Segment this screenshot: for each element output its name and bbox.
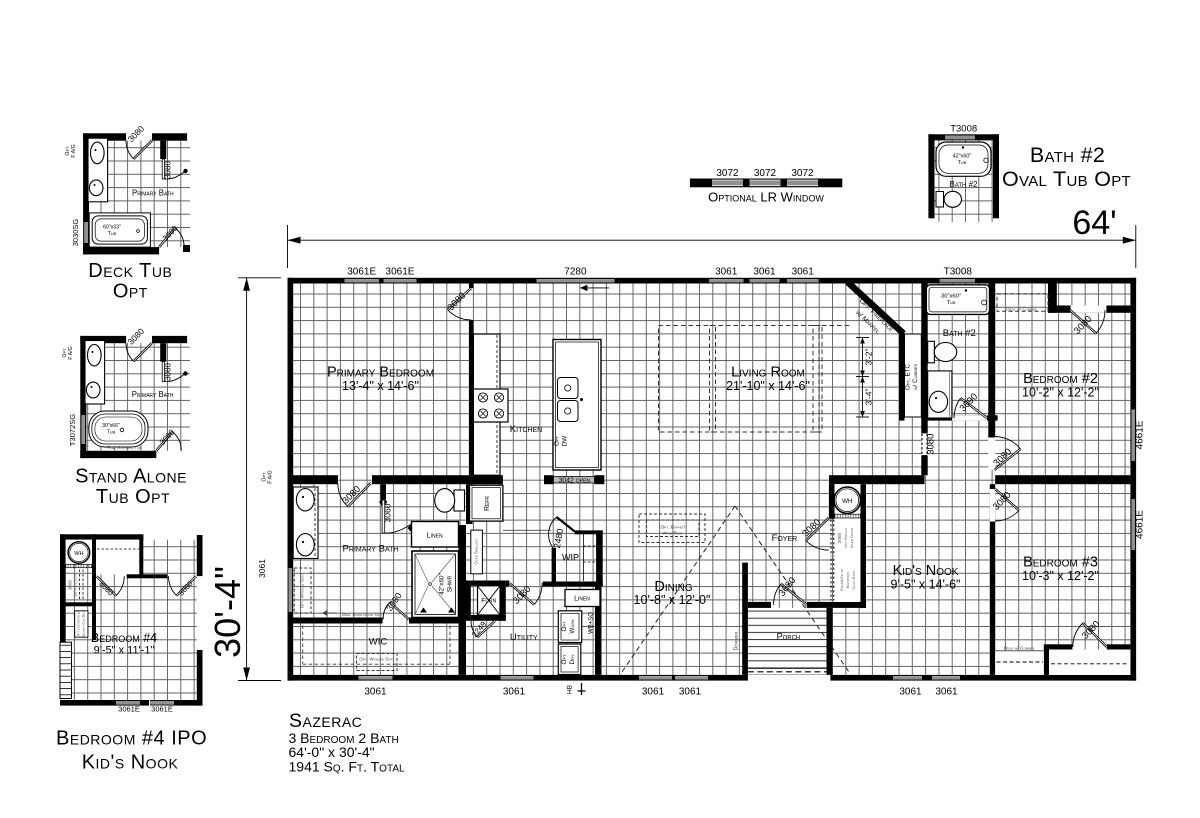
svg-text:Opt, ETC: Opt, ETC <box>905 364 912 391</box>
svg-text:Oven Shelves: Oven Shelves <box>474 539 479 564</box>
svg-text:30"x66": 30"x66" <box>102 423 120 429</box>
svg-text:64': 64' <box>1072 204 1116 242</box>
svg-text:Opt Lockers w/: Opt Lockers w/ <box>77 610 81 637</box>
svg-text:60"x33": 60"x33" <box>103 225 121 231</box>
svg-text:T3008: T3008 <box>950 124 977 135</box>
svg-text:42"x60": 42"x60" <box>439 573 446 595</box>
svg-text:Foyer: Foyer <box>772 533 798 544</box>
svg-text:3061: 3061 <box>935 687 958 698</box>
svg-text:3061E: 3061E <box>386 267 415 278</box>
svg-text:Wash: Wash <box>569 619 576 633</box>
svg-text:Tub: Tub <box>108 231 117 237</box>
svg-text:F A/G: F A/G <box>68 346 74 359</box>
svg-text:WIP: WIP <box>562 553 579 563</box>
svg-text:Desk w/ Cubbies: Desk w/ Cubbies <box>1006 307 1037 313</box>
svg-text:F A/G: F A/G <box>268 470 274 483</box>
svg-text:3030SG: 3030SG <box>71 219 80 247</box>
svg-text:Free Standing Tub: Free Standing Tub <box>107 445 141 450</box>
svg-text:Opt: Opt <box>561 654 568 665</box>
svg-text:T3008: T3008 <box>944 267 973 278</box>
svg-text:13'-4" x 14'-6": 13'-4" x 14'-6" <box>342 379 419 393</box>
svg-text:Oval Tub Opt: Oval Tub Opt <box>1002 167 1131 191</box>
svg-text:7280: 7280 <box>564 267 587 278</box>
svg-text:42"x60": 42"x60" <box>953 154 972 160</box>
svg-text:3061E: 3061E <box>151 705 173 714</box>
svg-text:w/ Cubbies: w/ Cubbies <box>912 363 919 390</box>
svg-text:Opt. Window Seat: Opt. Window Seat <box>300 574 305 609</box>
svg-text:Utility: Utility <box>510 632 538 643</box>
svg-text:Dormer: Dormer <box>734 631 740 650</box>
svg-text:3072: 3072 <box>791 168 814 179</box>
svg-text:3072: 3072 <box>716 168 739 179</box>
svg-text:3061: 3061 <box>257 559 267 578</box>
svg-text:Tub: Tub <box>958 160 967 166</box>
svg-text:WH: WH <box>842 498 852 505</box>
svg-text:Grab&Go w/: Grab&Go w/ <box>839 568 844 591</box>
svg-text:10'-3" x 12'-2": 10'-3" x 12'-2" <box>1022 569 1099 583</box>
svg-text:Wine Rack: Wine Rack <box>663 531 684 537</box>
svg-text:3061: 3061 <box>642 687 665 698</box>
svg-text:4661E: 4661E <box>1135 420 1146 449</box>
svg-text:1941 Sq. Ft. Total: 1941 Sq. Ft. Total <box>289 759 405 775</box>
svg-text:10'-8" x 12'-0": 10'-8" x 12'-0" <box>634 593 711 607</box>
svg-text:Opt: Opt <box>554 435 561 446</box>
svg-text:3061: 3061 <box>899 687 922 698</box>
svg-text:Opt Bifold: Opt Bifold <box>843 527 848 547</box>
svg-text:Opt: Opt <box>113 281 148 303</box>
svg-text:T3072SG: T3072SG <box>68 414 77 446</box>
svg-text:Linen: Linen <box>426 531 443 540</box>
svg-text:Barn Door: Barn Door <box>849 527 854 548</box>
svg-text:3'-2": 3'-2" <box>864 349 874 366</box>
svg-text:Mar. Barn Door Opt: Mar. Barn Door Opt <box>342 612 382 617</box>
svg-text:Bedroom #4: Bedroom #4 <box>91 631 157 645</box>
svg-text:Tub: Tub <box>946 300 955 306</box>
svg-text:3042 open: 3042 open <box>558 477 590 484</box>
svg-text:Desk w/ Cubbies: Desk w/ Cubbies <box>1004 645 1035 651</box>
svg-text:3061E: 3061E <box>118 705 140 714</box>
svg-text:10'-2" x 12'-2": 10'-2" x 12'-2" <box>1022 386 1099 400</box>
svg-text:Sazerac: Sazerac <box>289 710 362 732</box>
svg-text:Bath #2: Bath #2 <box>1030 143 1105 167</box>
svg-text:Opt: Opt <box>561 621 568 632</box>
svg-text:WB+SO: WB+SO <box>589 612 595 634</box>
svg-text:3061: 3061 <box>679 687 702 698</box>
svg-text:Bath #2: Bath #2 <box>949 180 978 189</box>
svg-text:Coat Rack: Coat Rack <box>851 570 856 589</box>
svg-text:Primary Bath: Primary Bath <box>132 189 174 198</box>
svg-text:Bedroom #4 IPO: Bedroom #4 IPO <box>56 728 207 750</box>
svg-text:Porch: Porch <box>777 632 801 642</box>
svg-text:Opt. Buffet/: Opt. Buffet/ <box>661 525 686 531</box>
svg-text:3080: 3080 <box>926 434 937 455</box>
svg-text:Refr: Refr <box>484 496 491 511</box>
svg-text:Stand Alone: Stand Alone <box>75 466 187 488</box>
svg-text:3061: 3061 <box>364 687 387 698</box>
svg-text:3061: 3061 <box>792 267 815 278</box>
svg-text:DW: DW <box>562 436 569 447</box>
svg-text:Bifold Door: Bifold Door <box>74 573 78 596</box>
svg-text:Backpack: Backpack <box>845 572 850 589</box>
svg-text:Kitchen: Kitchen <box>510 424 542 435</box>
svg-text:Linen: Linen <box>574 596 590 603</box>
svg-text:3061: 3061 <box>753 267 776 278</box>
svg-text:21'-10" x 14'-6": 21'-10" x 14'-6" <box>726 379 810 393</box>
svg-text:3061: 3061 <box>503 687 526 698</box>
svg-text:Shwr: Shwr <box>447 575 454 592</box>
svg-text:Primary Bath: Primary Bath <box>343 544 399 555</box>
svg-text:Tub Opt: Tub Opt <box>96 486 170 508</box>
svg-text:4661E: 4661E <box>1135 510 1146 539</box>
svg-text:30"x60": 30"x60" <box>941 294 961 300</box>
svg-text:9'-5" x 11'-1": 9'-5" x 11'-1" <box>94 645 155 657</box>
svg-text:F A/G: F A/G <box>71 144 77 157</box>
svg-text:3061: 3061 <box>715 267 738 278</box>
svg-text:Backpack Coat Rack: Backpack Coat Rack <box>82 610 86 637</box>
svg-text:Kid's Nook: Kid's Nook <box>82 752 179 774</box>
svg-text:Dry: Dry <box>569 654 576 664</box>
svg-text:Primary Bath: Primary Bath <box>132 390 174 399</box>
svg-text:3072: 3072 <box>754 168 777 179</box>
svg-text:30'-4": 30'-4" <box>207 566 248 658</box>
svg-text:Furn: Furn <box>481 598 496 605</box>
svg-text:3'-4": 3'-4" <box>864 389 874 406</box>
svg-text:3060: 3060 <box>383 503 393 522</box>
svg-text:Optional LR Window: Optional LR Window <box>708 190 824 205</box>
svg-text:9'-5" x 14'-6": 9'-5" x 14'-6" <box>891 578 961 592</box>
svg-text:Tub: Tub <box>107 430 116 436</box>
svg-text:WH: WH <box>74 551 83 557</box>
svg-text:Bath #2: Bath #2 <box>943 328 976 339</box>
svg-text:WIC: WIC <box>369 637 388 648</box>
svg-text:HB: HB <box>567 685 574 694</box>
svg-text:Deck Tub: Deck Tub <box>88 260 172 282</box>
svg-text:3061E: 3061E <box>347 267 376 278</box>
svg-text:Opt. Window Seat: Opt. Window Seat <box>359 657 394 662</box>
svg-text:3080: 3080 <box>68 579 73 590</box>
